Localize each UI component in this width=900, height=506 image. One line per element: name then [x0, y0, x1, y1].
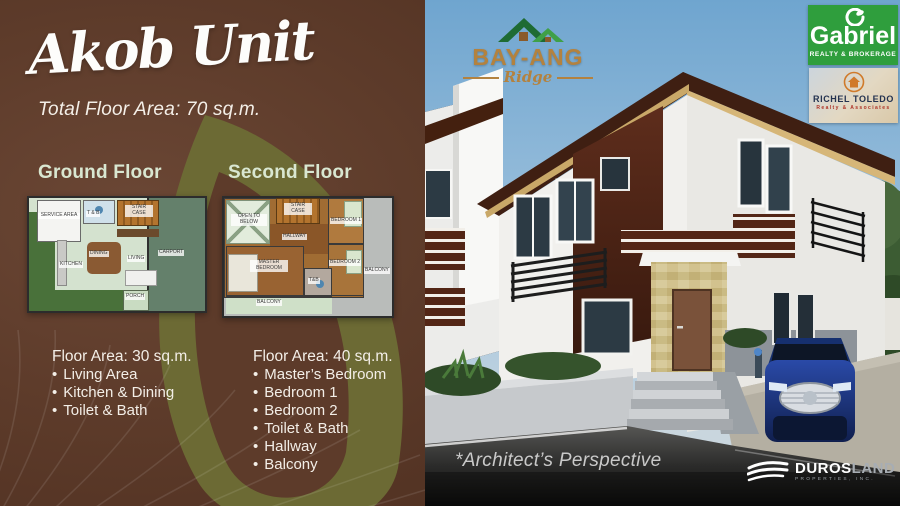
richel-name: RICHEL TOLEDO [813, 94, 894, 104]
unit-title: Akob Unit [27, 5, 370, 87]
room-label: STAIR CASE [284, 203, 312, 215]
list-item: •Kitchen & Dining [52, 384, 192, 402]
small-window [601, 158, 629, 190]
bullet: • [253, 384, 258, 402]
second-floor-area-text: Floor Area: 40 sq.m. [253, 348, 393, 366]
bullet: • [253, 420, 258, 438]
neighbor-unit [425, 68, 503, 372]
entry-slat-band [621, 230, 733, 254]
list-item-label: Balcony [264, 456, 317, 474]
bay-ang-ridge-logo: BAY-ANG Ridge [463, 12, 593, 85]
side-window [773, 292, 790, 344]
list-item: •Toilet & Bath [52, 402, 192, 420]
ground-floor-list: Floor Area: 30 sq.m. •Living Area •Kitch… [52, 348, 192, 420]
list-item-label: Toilet & Bath [63, 402, 147, 420]
list-item-label: Kitchen & Dining [63, 384, 174, 402]
room-label: DINING [89, 251, 109, 257]
richel-house-icon [843, 71, 865, 93]
bullet: • [52, 384, 57, 402]
room-label: KITCHEN [59, 262, 83, 268]
room-label: T&B [308, 278, 320, 284]
room-label: BEDROOM 2 [329, 260, 361, 266]
bullet: • [253, 438, 258, 456]
gabriel-name: Gabriel [810, 24, 896, 49]
list-item: •Living Area [52, 366, 192, 384]
bullet: • [253, 402, 258, 420]
list-item-label: Bedroom 1 [264, 384, 337, 402]
gabriel-realty-badge: Gabriel REALTY & BROKERAGE [808, 5, 898, 65]
bay-ang-roofs-icon [486, 12, 570, 46]
durosland-waves-icon [747, 460, 789, 484]
room-label: PORCH [125, 294, 145, 300]
list-item: •Toilet & Bath [253, 420, 393, 438]
room-label: MASTER BEDROOM [250, 260, 288, 272]
list-item-label: Bedroom 2 [264, 402, 337, 420]
company-subtitle: PROPERTIES, INC. [795, 478, 895, 483]
door-handle [677, 326, 683, 329]
second-floor-heading: Second Floor [228, 162, 352, 184]
plan-sofa [125, 270, 157, 286]
company-name-light: LAND [852, 460, 896, 477]
gold-rule [463, 77, 499, 79]
durosland-logo: DUROSLAND PROPERTIES, INC. [747, 460, 895, 484]
room-label: STAIR CASE [125, 205, 153, 217]
room-label: BEDROOM 1 [330, 218, 362, 224]
list-item: •Bedroom 2 [253, 402, 393, 420]
total-floor-area: Total Floor Area: 70 sq.m. [38, 99, 260, 121]
bullet: • [52, 366, 57, 384]
ground-floor-plan: SERVICE AREA T & B STAIR CASE KITCHEN DI… [27, 196, 207, 313]
list-item: •Bedroom 1 [253, 384, 393, 402]
flyer-akob-unit: Akob Unit Total Floor Area: 70 sq.m. Gro… [0, 0, 900, 506]
second-floor-plan: OPEN TO BELOW STAIR CASE HALLWAY BEDROOM… [222, 196, 394, 318]
list-item-label: Hallway [264, 438, 317, 456]
ground-floor-area-text: Floor Area: 30 sq.m. [52, 348, 192, 366]
room-label: HALLWAY [282, 234, 307, 240]
room-label: OPEN TO BELOW [231, 214, 267, 226]
info-panel: Akob Unit Total Floor Area: 70 sq.m. Gro… [0, 0, 425, 506]
list-item-label: Living Area [63, 366, 137, 384]
slat-panel [733, 214, 795, 258]
company-name-bold: DUROS [795, 460, 852, 477]
ground-floor-heading: Ground Floor [38, 162, 162, 184]
plan-console [117, 229, 159, 237]
room-label: CARPORT [158, 250, 184, 256]
list-item-label: Master’s Bedroom [264, 366, 386, 384]
architect-render: BAY-ANG Ridge Gabriel REALTY & BROKERAGE [425, 0, 900, 506]
list-item: •Master’s Bedroom [253, 366, 393, 384]
richel-toledo-badge: RICHEL TOLEDO Realty & Associates [809, 68, 898, 123]
plan-dining-table [87, 242, 121, 274]
list-item-label: Toilet & Bath [264, 420, 348, 438]
bullet: • [253, 366, 258, 384]
room-label: BALCONY [364, 268, 390, 274]
room-label: LIVING [127, 256, 145, 262]
dev-name: BAY-ANG [463, 46, 593, 69]
gabriel-subtitle: REALTY & BROKERAGE [810, 51, 897, 58]
ground-window [583, 300, 631, 354]
richel-subtitle: Realty & Associates [816, 105, 890, 111]
gold-rule [557, 77, 593, 79]
bullet: • [253, 456, 258, 474]
second-floor-list: Floor Area: 40 sq.m. •Master’s Bedroom •… [253, 348, 393, 474]
dev-tagline: Ridge [504, 70, 553, 85]
plan-service-area [37, 200, 81, 242]
list-item: •Balcony [253, 456, 393, 474]
bullet: • [52, 402, 57, 420]
room-label: SERVICE AREA [38, 213, 80, 219]
list-item: •Hallway [253, 438, 393, 456]
front-door [673, 290, 711, 370]
room-label: BALCONY [256, 300, 282, 306]
room-label: T & B [86, 211, 100, 217]
architect-perspective-caption: *Architect’s Perspective [455, 450, 661, 472]
